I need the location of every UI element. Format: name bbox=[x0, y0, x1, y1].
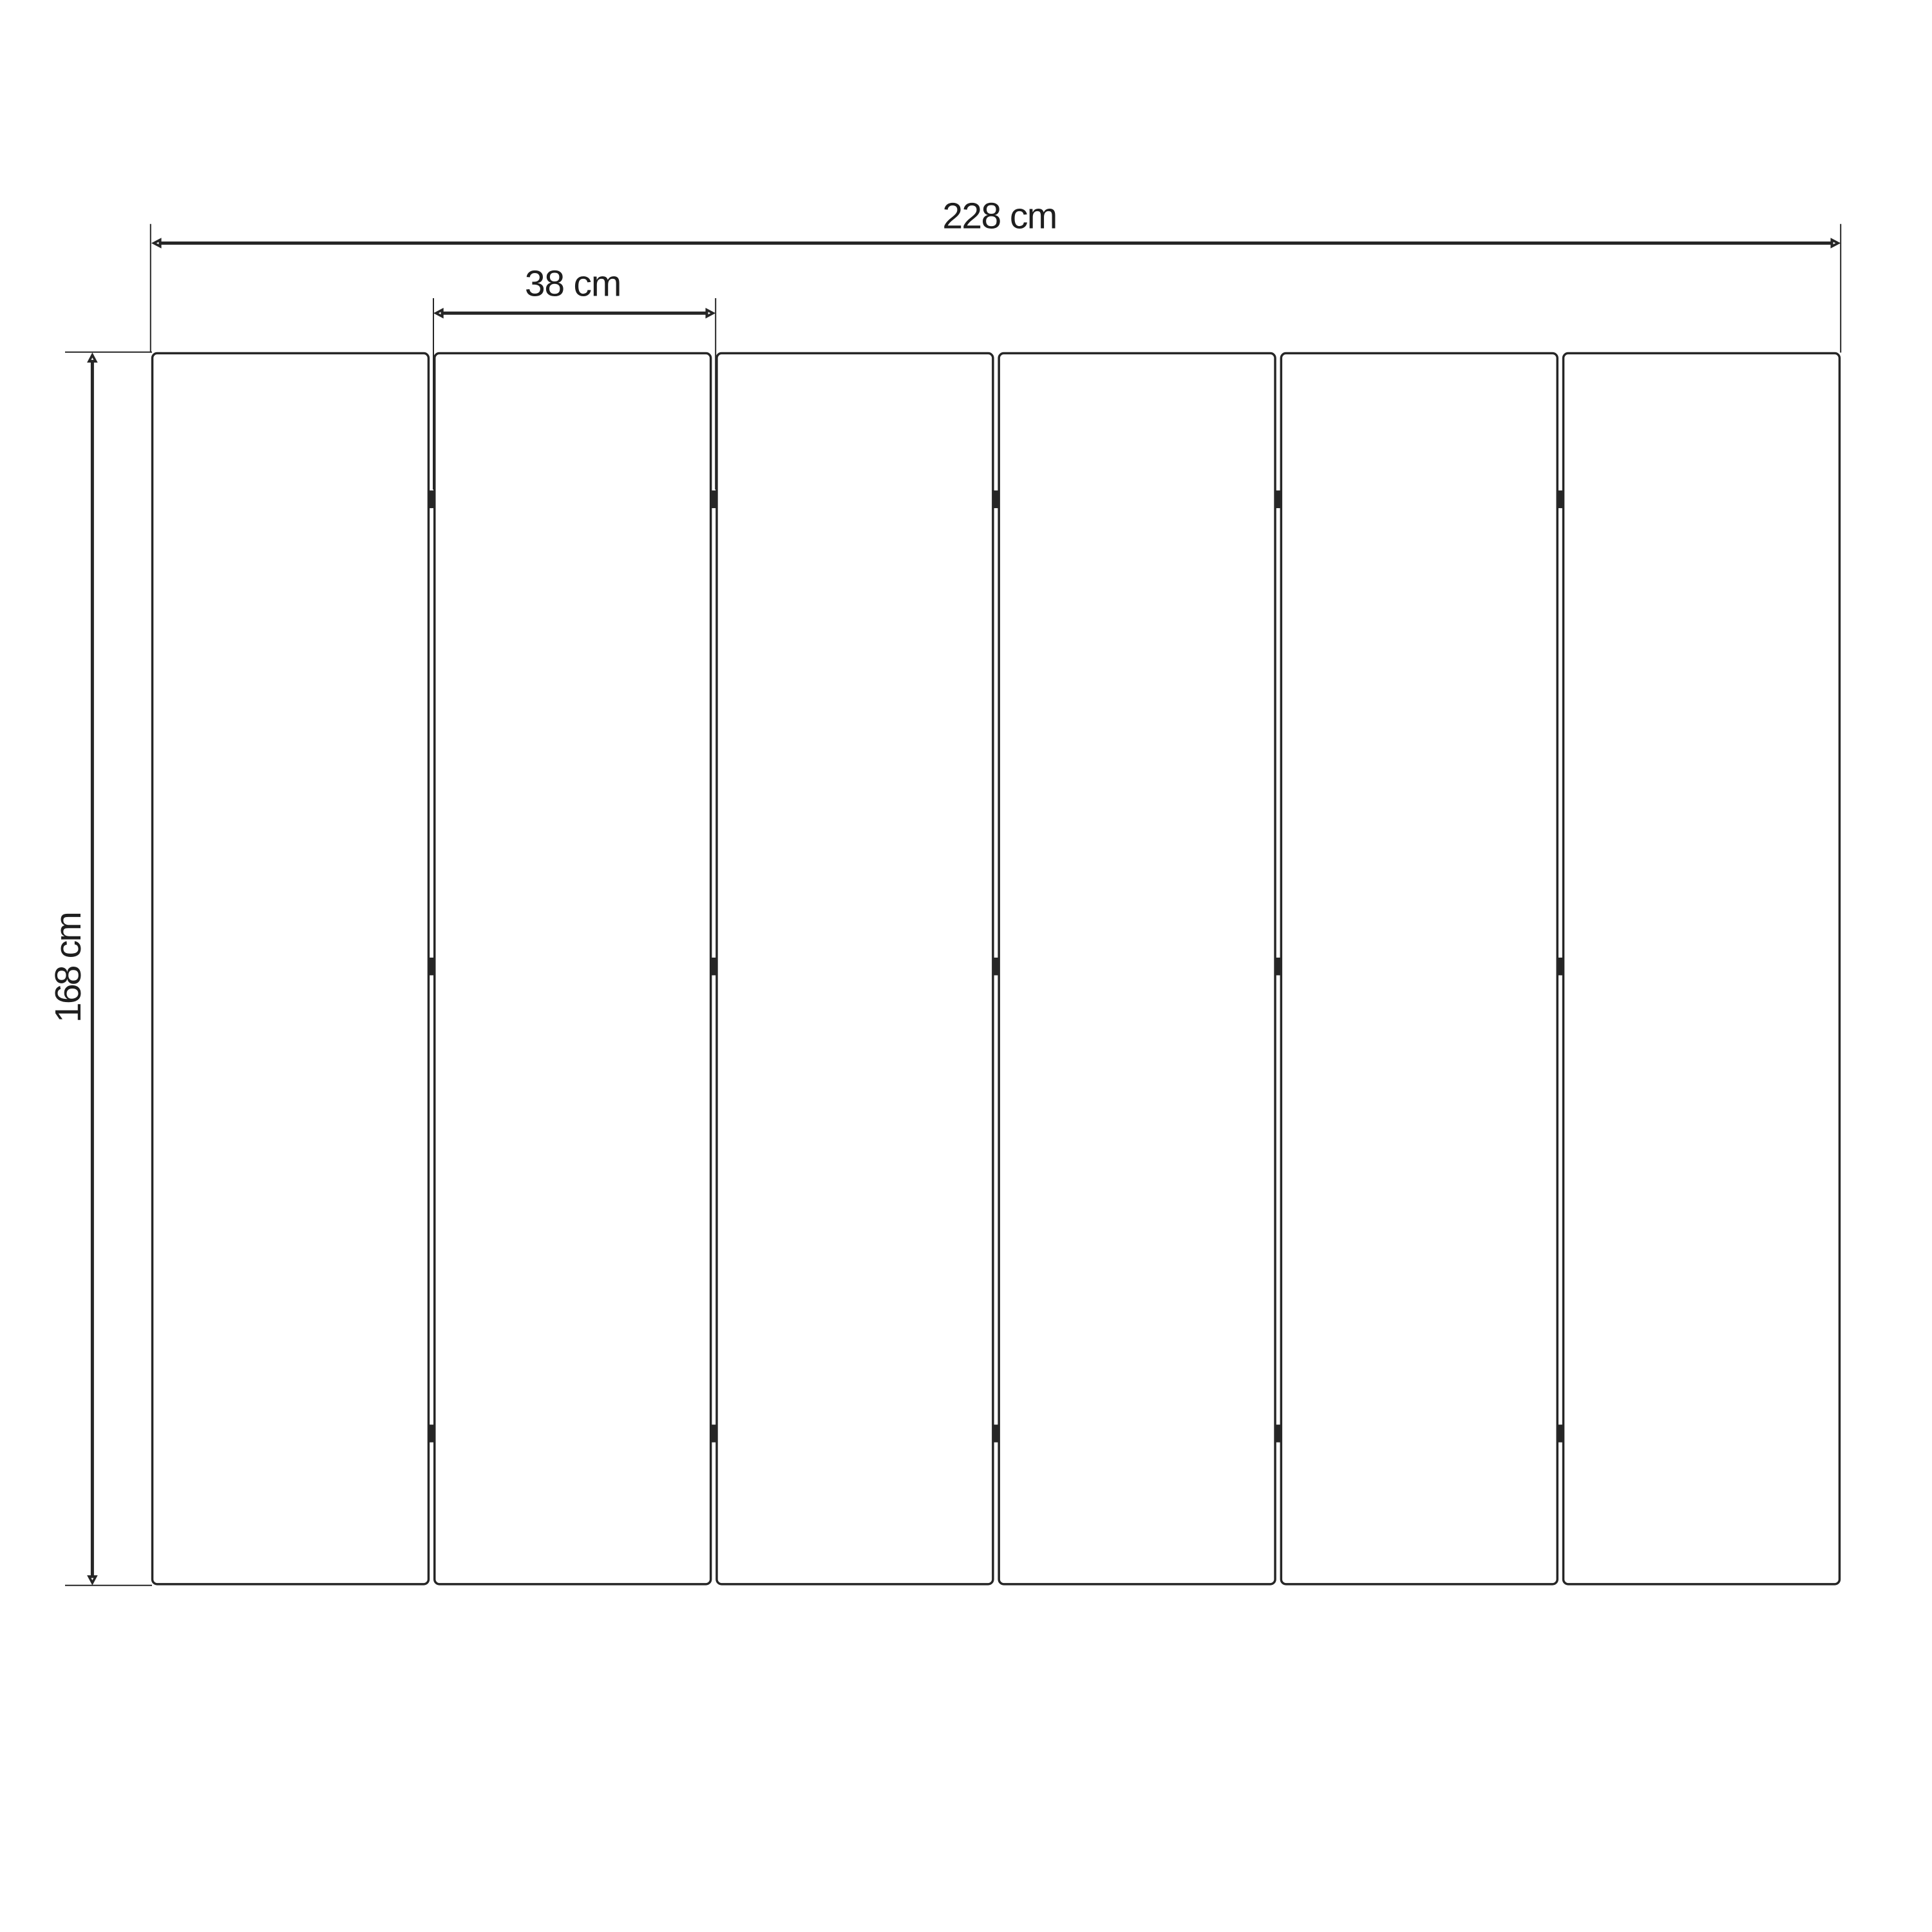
svg-text:168 cm: 168 cm bbox=[48, 913, 89, 1023]
svg-text:228 cm: 228 cm bbox=[942, 196, 1056, 237]
svg-text:38 cm: 38 cm bbox=[525, 263, 621, 305]
